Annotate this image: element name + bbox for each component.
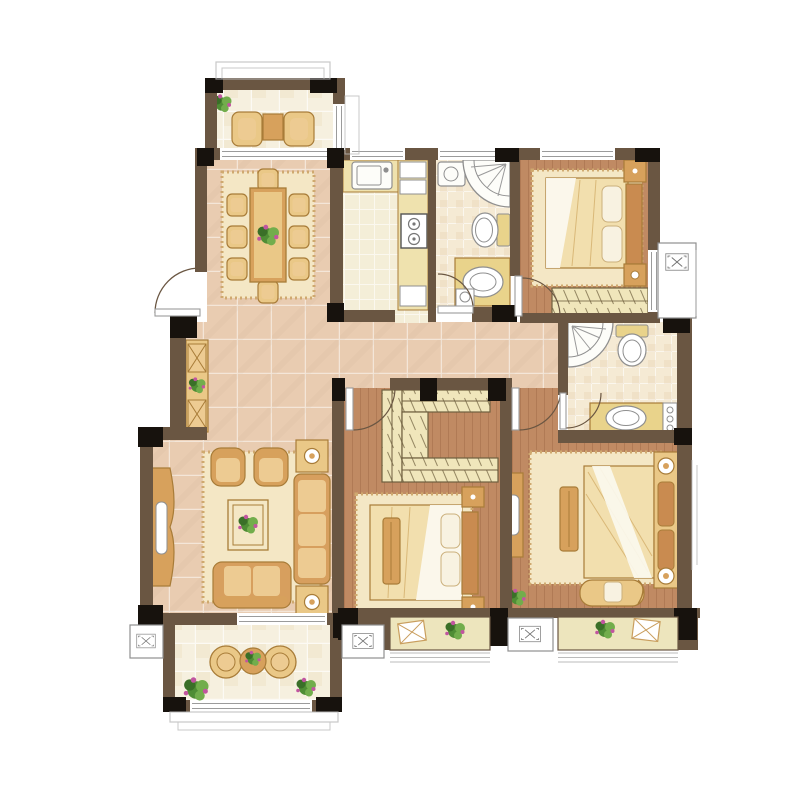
dining-chair	[289, 226, 309, 248]
window-living-balcony-south	[190, 700, 312, 712]
bay-window-glass	[558, 653, 678, 662]
ac-unit-icon	[137, 634, 156, 648]
ac-unit-icon	[353, 634, 373, 649]
dining-chair	[289, 258, 309, 280]
loveseat-cushion	[253, 566, 280, 596]
headboard-cushion	[658, 482, 674, 526]
nightstand-lamp	[631, 271, 639, 279]
dining-chair	[227, 258, 247, 280]
toilet	[618, 334, 646, 366]
armchair-cushion	[259, 458, 283, 482]
window-balcony-side	[333, 104, 345, 150]
kitchen-opening-floor	[395, 310, 428, 323]
dining-chair	[227, 226, 247, 248]
cabinet	[400, 180, 426, 194]
armchair-cushion	[216, 458, 240, 482]
ac-unit-icon	[520, 626, 541, 641]
sofa-cushion	[298, 548, 326, 578]
burner-center	[412, 237, 415, 240]
table-lamp	[305, 449, 320, 464]
headboard-cushion	[658, 530, 674, 570]
vanity-sink	[606, 406, 646, 430]
chair-seat	[271, 653, 289, 671]
burner-center	[412, 222, 415, 225]
pillow	[441, 514, 460, 548]
tv	[156, 502, 167, 554]
nightstand-knob	[471, 495, 476, 500]
closet-unit	[402, 412, 428, 458]
dining-chair	[258, 281, 278, 303]
nightstand-knob	[633, 169, 638, 174]
sofa-cushion	[298, 514, 326, 546]
toilet-tank	[497, 214, 510, 246]
window-bathroom-1	[438, 148, 498, 160]
pillow	[441, 552, 460, 586]
entry-door	[155, 268, 200, 316]
sofa-cushion	[298, 480, 326, 512]
entry-hall	[186, 340, 208, 432]
armchair-cushion	[238, 118, 256, 140]
ac-unit-icon	[666, 254, 689, 271]
refrigerator	[400, 162, 426, 178]
dining-chair	[289, 194, 309, 216]
sink-faucet	[383, 167, 388, 172]
lamp-center	[663, 463, 669, 469]
pillow	[602, 186, 622, 222]
pillow	[602, 226, 622, 262]
window-bedroom-2	[540, 148, 615, 160]
dining-room	[222, 169, 314, 303]
bay-window-glass	[390, 653, 490, 662]
floor-plan-page	[0, 0, 800, 800]
loveseat-cushion	[224, 566, 251, 596]
loveseat-back	[216, 596, 288, 607]
washbasin	[438, 162, 465, 186]
floor-plan-drawing	[0, 0, 800, 800]
chaise-pillow	[604, 582, 622, 602]
headboard	[626, 184, 642, 264]
headboard	[462, 512, 478, 594]
window-living-balcony-slider	[237, 613, 327, 625]
cabinet	[400, 286, 426, 306]
cooktop	[401, 214, 427, 248]
dining-chair	[227, 194, 247, 216]
armchair-cushion	[290, 118, 308, 140]
window-dining-balcony-slider	[220, 148, 330, 160]
decor-box	[632, 618, 660, 641]
decor-box	[398, 620, 427, 643]
lamp-center	[663, 573, 669, 579]
table-lamp	[305, 595, 320, 610]
chair-seat	[217, 653, 235, 671]
tea-table	[263, 114, 283, 140]
